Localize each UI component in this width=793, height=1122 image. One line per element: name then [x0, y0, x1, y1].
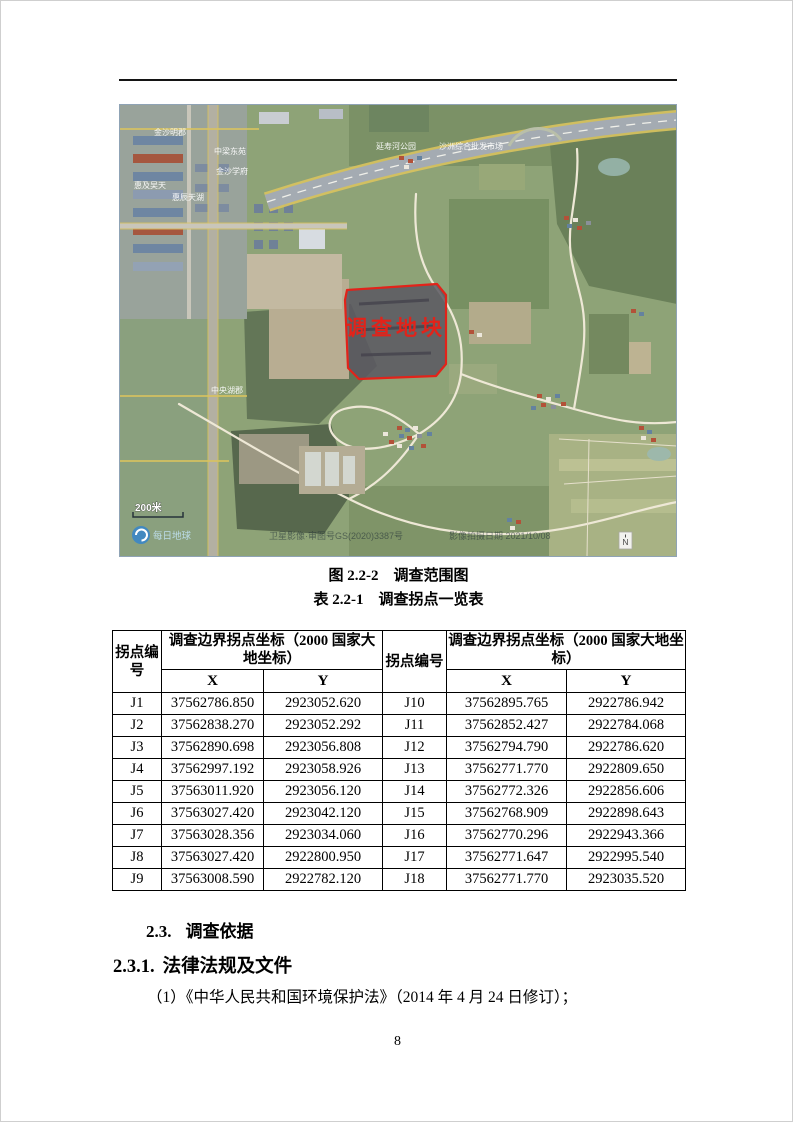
cell-y: 2923052.620	[264, 693, 383, 715]
cell-point-id: J2	[113, 715, 162, 737]
cell-y: 2922800.950	[264, 847, 383, 869]
cell-point-id: J10	[383, 693, 447, 715]
cell-point-id: J8	[113, 847, 162, 869]
place-label: 沙洲综合批发市场	[439, 141, 503, 151]
place-label: 中梁东苑	[214, 146, 246, 156]
cell-point-id: J14	[383, 781, 447, 803]
table-row: J4 37562997.192 2923058.926 J13 37562771…	[113, 759, 686, 781]
cell-point-id: J12	[383, 737, 447, 759]
table-caption: 表 2.2-1 调查拐点一览表	[113, 591, 684, 609]
cell-point-id: J5	[113, 781, 162, 803]
cell-y: 2922943.366	[567, 825, 686, 847]
table-row: J7 37563028.356 2923034.060 J16 37562770…	[113, 825, 686, 847]
cell-x: 37562771.647	[447, 847, 567, 869]
cell-point-id: J6	[113, 803, 162, 825]
cell-x: 37562895.765	[447, 693, 567, 715]
cell-y: 2922786.620	[567, 737, 686, 759]
map-logo-text: 每日地球	[153, 530, 192, 542]
cell-y: 2923058.926	[264, 759, 383, 781]
cell-x: 37562794.790	[447, 737, 567, 759]
header-x-left: X	[162, 670, 264, 693]
table-header: 拐点编号 调查边界拐点坐标（2000 国家大地坐标） 拐点编号 调查边界拐点坐标…	[113, 631, 686, 693]
cell-x: 37562890.698	[162, 737, 264, 759]
place-label: 中央湖郡	[211, 385, 243, 395]
scale-label: 200米	[135, 501, 163, 514]
document-page: 调查地块 金沙明郡 中梁东苑 金沙学府 惠及吴天 惠辰天湖 中央湖郡 延寿河公园…	[0, 0, 793, 1122]
table-row: J5 37563011.920 2923056.120 J14 37562772…	[113, 781, 686, 803]
cell-y: 2922856.606	[567, 781, 686, 803]
cell-y: 2923034.060	[264, 825, 383, 847]
cell-y: 2923035.520	[567, 869, 686, 891]
cell-point-id: J11	[383, 715, 447, 737]
cell-y: 2922995.540	[567, 847, 686, 869]
cell-point-id: J4	[113, 759, 162, 781]
table-row: J8 37563027.420 2922800.950 J17 37562771…	[113, 847, 686, 869]
cell-x: 37562852.427	[447, 715, 567, 737]
cell-x: 37562771.770	[447, 869, 567, 891]
table-row: J1 37562786.850 2923052.620 J10 37562895…	[113, 693, 686, 715]
map-license-watermark: 卫星影像·审图号GS(2020)3387号	[269, 530, 403, 541]
place-label: 金沙明郡	[154, 127, 186, 137]
table-body: J1 37562786.850 2923052.620 J10 37562895…	[113, 693, 686, 891]
cell-point-id: J16	[383, 825, 447, 847]
header-id-left: 拐点编号	[113, 631, 162, 693]
cell-x: 37562770.296	[447, 825, 567, 847]
cell-y: 2922786.942	[567, 693, 686, 715]
cell-point-id: J15	[383, 803, 447, 825]
table-row: J3 37562890.698 2923056.808 J12 37562794…	[113, 737, 686, 759]
cell-y: 2922809.650	[567, 759, 686, 781]
north-indicator: N	[619, 532, 632, 549]
table-row: J2 37562838.270 2923052.292 J11 37562852…	[113, 715, 686, 737]
cell-x: 37562786.850	[162, 693, 264, 715]
header-y-right: Y	[567, 670, 686, 693]
cell-y: 2922784.068	[567, 715, 686, 737]
header-coord-left: 调查边界拐点坐标（2000 国家大地坐标）	[162, 631, 383, 670]
page-number: 8	[1, 1034, 793, 1050]
cell-point-id: J18	[383, 869, 447, 891]
cell-y: 2923056.808	[264, 737, 383, 759]
cell-x: 37562771.770	[447, 759, 567, 781]
north-label: N	[622, 537, 628, 547]
cell-point-id: J17	[383, 847, 447, 869]
map-date-watermark: 影像拍摄日期 2021/10/08	[449, 530, 551, 541]
section-heading-2-3: 2.3.调查依据	[146, 917, 254, 942]
cell-x: 37563008.590	[162, 869, 264, 891]
header-y-left: Y	[264, 670, 383, 693]
cell-x: 37563028.356	[162, 825, 264, 847]
header-id-right: 拐点编号	[383, 631, 447, 693]
table-row: J9 37563008.590 2922782.120 J18 37562771…	[113, 869, 686, 891]
place-label: 延寿河公园	[376, 141, 416, 151]
cell-x: 37562772.326	[447, 781, 567, 803]
survey-plot: 调查地块	[345, 284, 446, 379]
cell-point-id: J9	[113, 869, 162, 891]
cell-point-id: J13	[383, 759, 447, 781]
section-title: 法律法规及文件	[163, 955, 293, 976]
header-rule	[119, 79, 677, 81]
section-heading-2-3-1: 2.3.1.法律法规及文件	[113, 952, 292, 978]
cell-y: 2922782.120	[264, 869, 383, 891]
section-title: 调查依据	[186, 922, 254, 941]
table-row: J6 37563027.420 2923042.120 J15 37562768…	[113, 803, 686, 825]
cell-x: 37563027.420	[162, 803, 264, 825]
survey-map-figure: 调查地块 金沙明郡 中梁东苑 金沙学府 惠及吴天 惠辰天湖 中央湖郡 延寿河公园…	[119, 104, 677, 557]
satellite-map: 调查地块 金沙明郡 中梁东苑 金沙学府 惠及吴天 惠辰天湖 中央湖郡 延寿河公园…	[119, 104, 677, 557]
coordinates-table: 拐点编号 调查边界拐点坐标（2000 国家大地坐标） 拐点编号 调查边界拐点坐标…	[112, 630, 686, 891]
cell-x: 37563027.420	[162, 847, 264, 869]
cell-point-id: J1	[113, 693, 162, 715]
survey-plot-label: 调查地块	[346, 316, 446, 340]
header-coord-right: 调查边界拐点坐标（2000 国家大地坐标）	[447, 631, 686, 670]
cell-x: 37562838.270	[162, 715, 264, 737]
cell-x: 37563011.920	[162, 781, 264, 803]
cell-point-id: J3	[113, 737, 162, 759]
cell-point-id: J7	[113, 825, 162, 847]
place-label: 金沙学府	[216, 166, 248, 176]
cell-x: 37562768.909	[447, 803, 567, 825]
body-paragraph: （1）《中华人民共和国环境保护法》（2014 年 4 月 24 日修订）；	[147, 987, 577, 1009]
cell-x: 37562997.192	[162, 759, 264, 781]
cell-y: 2922898.643	[567, 803, 686, 825]
section-number: 2.3.1.	[113, 957, 155, 977]
place-label: 惠辰天湖	[172, 192, 204, 202]
place-label: 惠及吴天	[134, 180, 166, 190]
cell-y: 2923056.120	[264, 781, 383, 803]
figure-caption: 图 2.2-2 调查范围图	[113, 567, 684, 585]
header-x-right: X	[447, 670, 567, 693]
cell-y: 2923042.120	[264, 803, 383, 825]
cell-y: 2923052.292	[264, 715, 383, 737]
section-number: 2.3.	[146, 922, 172, 941]
